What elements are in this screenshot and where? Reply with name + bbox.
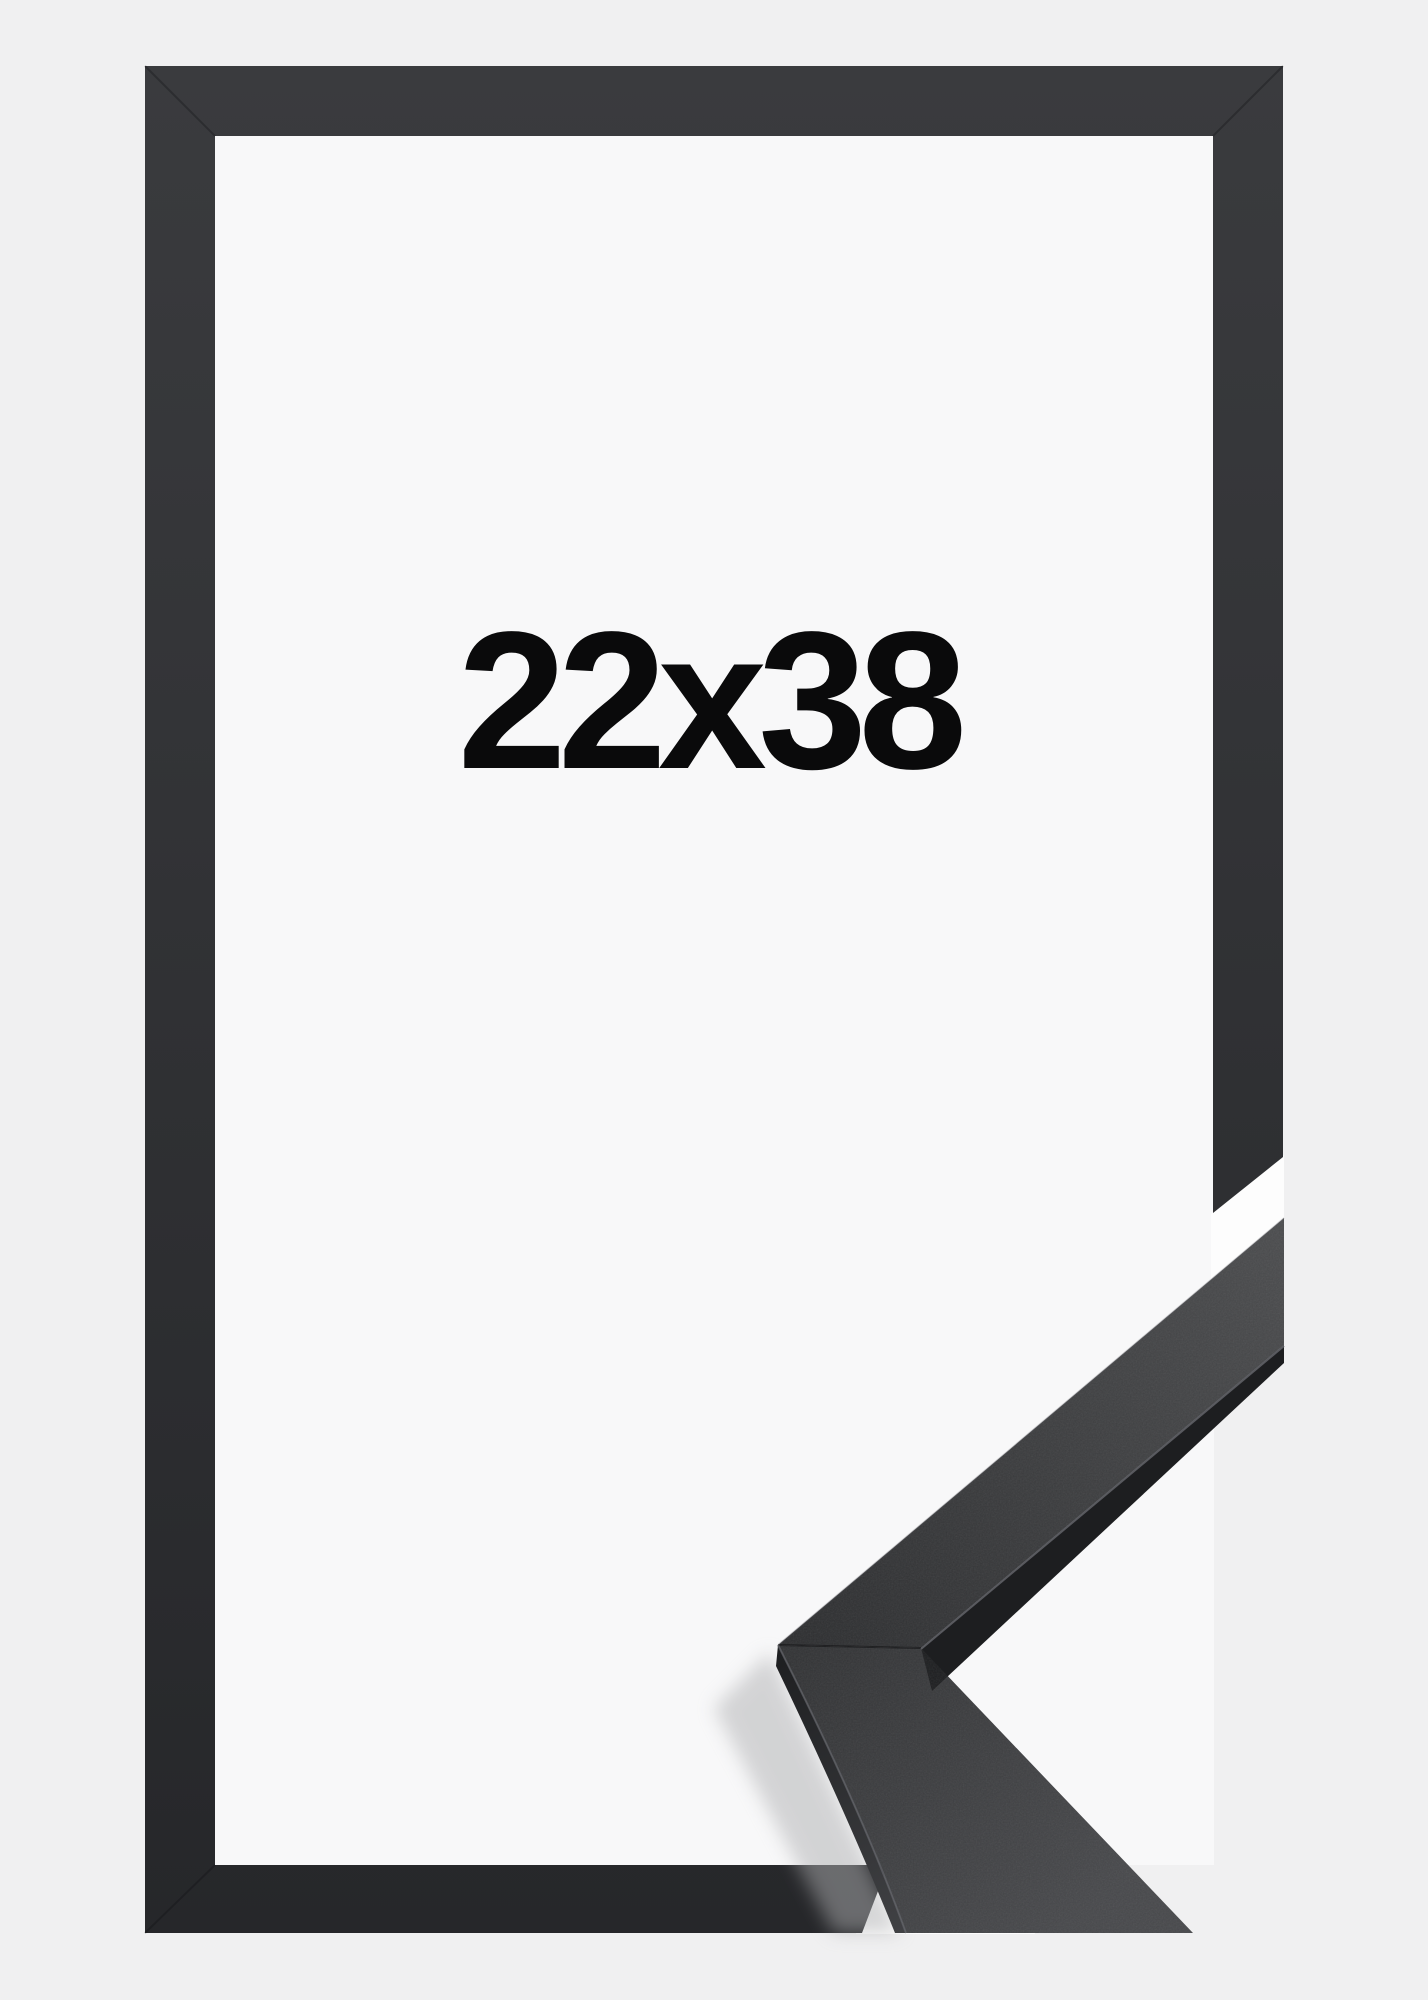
frame-right-bar-cut [1213,136,1283,1213]
frame-opening [215,136,1214,1865]
frame-left-bar [145,66,215,1933]
frame-product-photo: 22x38 [0,0,1428,2000]
frame-bottom-bar-cut [145,1865,888,1933]
frame-top-bar [145,66,1283,136]
frame-illustration [0,0,1428,2000]
size-label: 22x38 [458,603,959,799]
